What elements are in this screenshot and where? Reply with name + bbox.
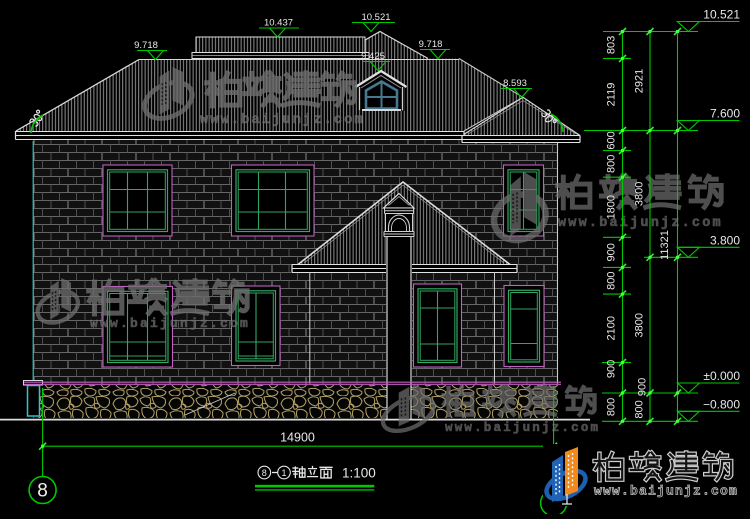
svg-text:www.baijunjz.com: www.baijunjz.com — [594, 484, 738, 499]
svg-text:1:100: 1:100 — [342, 466, 376, 481]
svg-text:www.baijunjz.com: www.baijunjz.com — [200, 113, 365, 128]
svg-text:7.600: 7.600 — [710, 107, 740, 121]
svg-text:−0.800: −0.800 — [703, 397, 740, 411]
svg-text:10.437: 10.437 — [264, 18, 293, 29]
svg-text:900: 900 — [637, 378, 649, 396]
svg-text:1: 1 — [281, 468, 286, 478]
svg-text:9.425: 9.425 — [361, 51, 385, 62]
svg-text:1800: 1800 — [606, 195, 618, 219]
svg-text:9.718: 9.718 — [134, 40, 158, 51]
svg-text:800: 800 — [606, 272, 618, 290]
svg-text:8.593: 8.593 — [503, 78, 527, 89]
svg-text:10.521: 10.521 — [703, 8, 740, 22]
svg-text:8: 8 — [262, 468, 267, 478]
svg-text:900: 900 — [606, 243, 618, 261]
svg-text:8: 8 — [37, 481, 48, 502]
svg-text:www.baijunjz.com: www.baijunjz.com — [90, 316, 250, 331]
svg-text:9.718: 9.718 — [419, 39, 443, 50]
svg-text:2921: 2921 — [634, 69, 646, 93]
svg-text:803: 803 — [606, 36, 618, 54]
svg-text:2119: 2119 — [606, 83, 618, 107]
svg-text:2100: 2100 — [606, 316, 618, 340]
svg-text:www.baijunjz.com: www.baijunjz.com — [558, 216, 723, 231]
svg-text:±0.000: ±0.000 — [703, 369, 740, 383]
svg-text:3800: 3800 — [634, 182, 646, 206]
svg-text:10.521: 10.521 — [361, 12, 390, 23]
svg-text:www.baijunjz.com: www.baijunjz.com — [445, 421, 600, 435]
svg-text:800: 800 — [606, 155, 618, 173]
svg-text:900: 900 — [606, 360, 618, 378]
svg-text:600: 600 — [606, 131, 618, 149]
svg-text:800: 800 — [634, 400, 646, 418]
svg-text:14900: 14900 — [280, 431, 315, 445]
svg-text:3800: 3800 — [634, 313, 646, 337]
svg-text:3.800: 3.800 — [710, 233, 740, 247]
svg-text:800: 800 — [606, 398, 618, 416]
svg-text:11321: 11321 — [659, 230, 671, 260]
